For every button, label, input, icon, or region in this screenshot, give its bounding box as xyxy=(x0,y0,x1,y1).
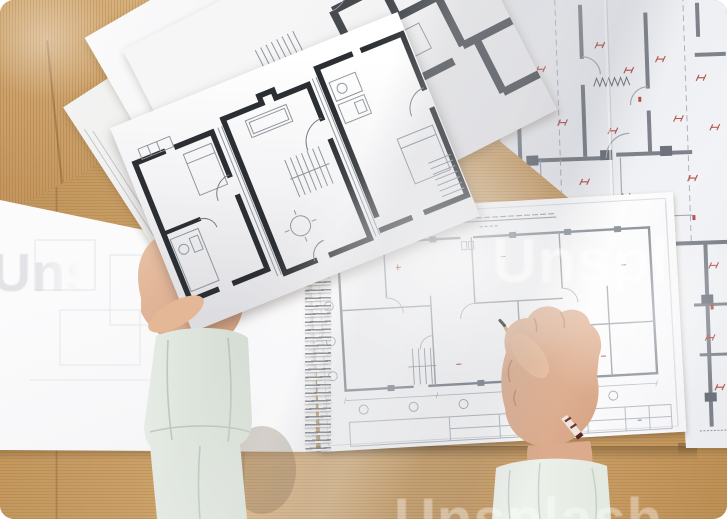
right-sleeve xyxy=(492,459,611,519)
left-sleeve xyxy=(144,328,252,519)
photo-canvas: Uns xyxy=(0,0,727,519)
right-hand xyxy=(501,306,601,473)
pencil-graphite-tip xyxy=(500,321,505,326)
foreground-hands-layer xyxy=(0,0,727,519)
